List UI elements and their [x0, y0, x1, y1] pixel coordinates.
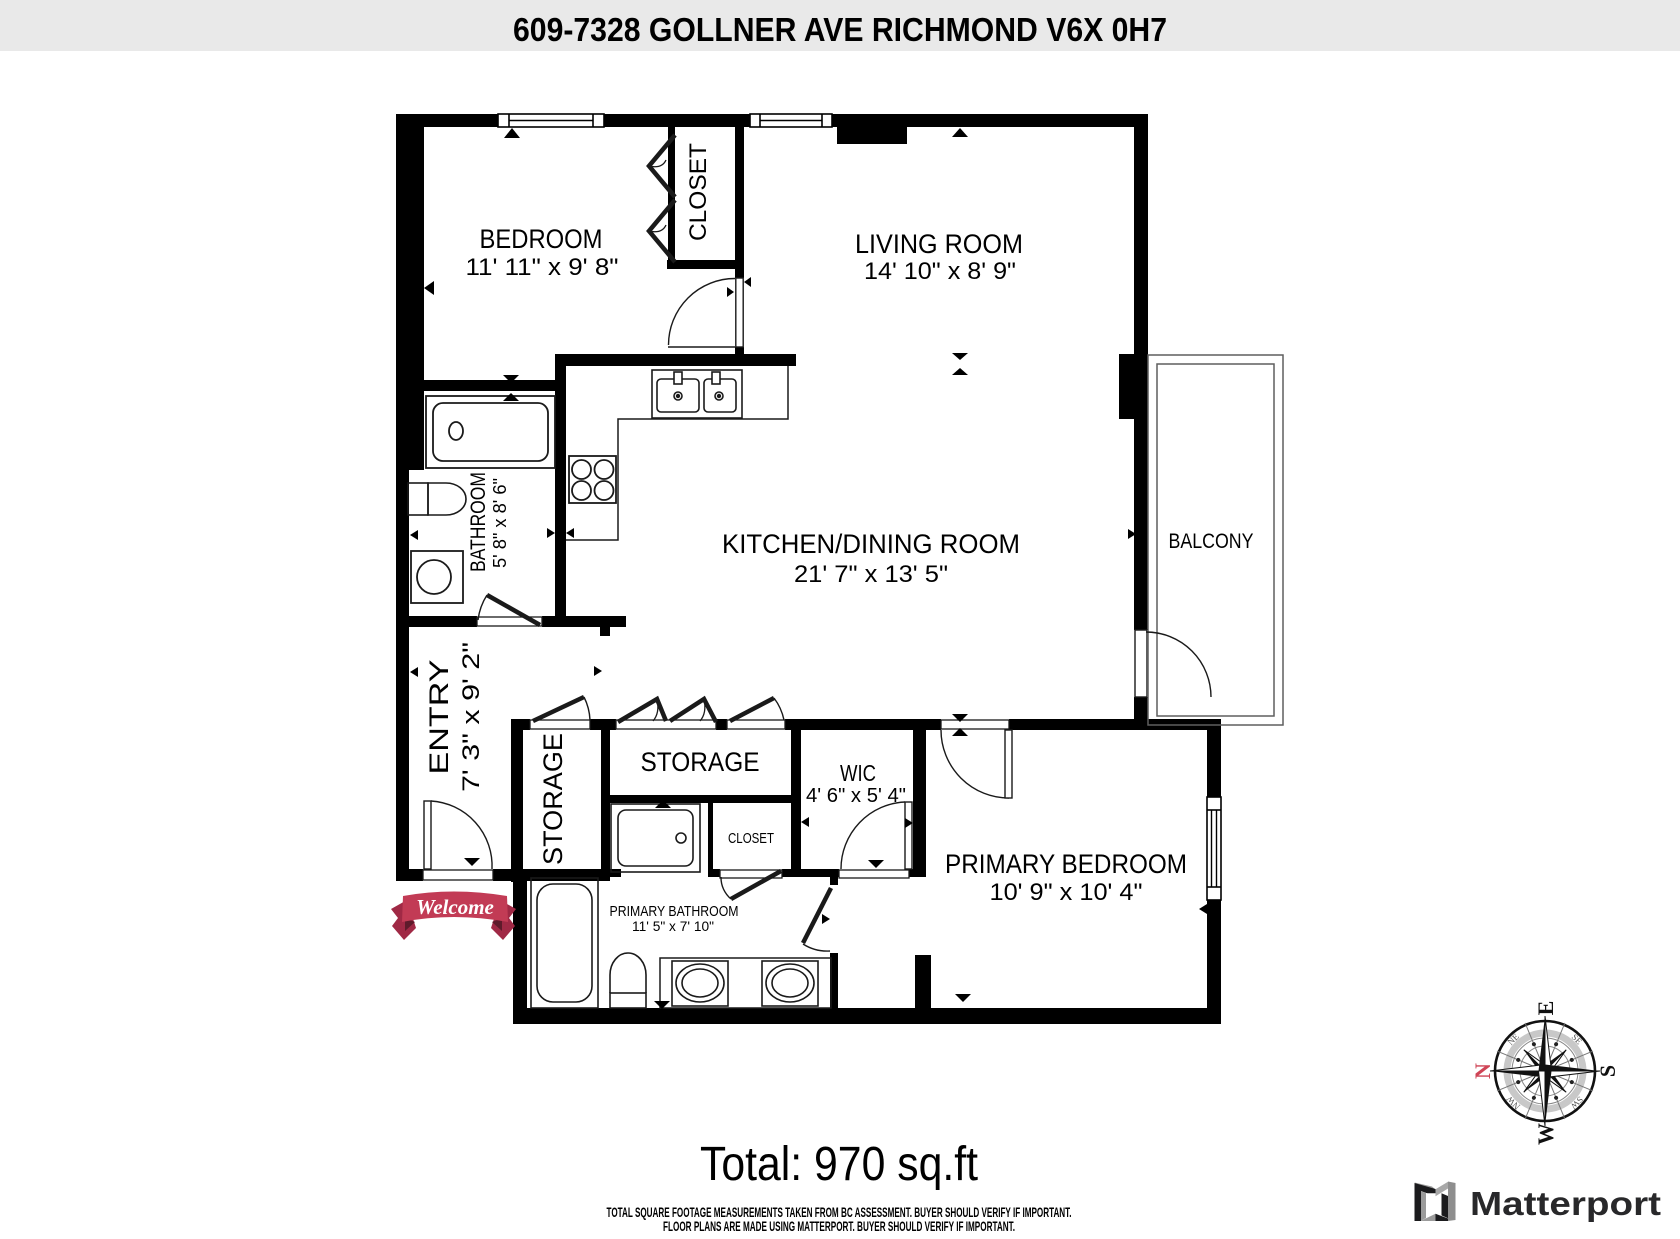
svg-text:CLOSET: CLOSET — [685, 143, 712, 241]
svg-text:11' 5" x 7' 10": 11' 5" x 7' 10" — [632, 918, 714, 934]
svg-text:PRIMARY BEDROOM: PRIMARY BEDROOM — [945, 849, 1187, 879]
svg-text:Welcome: Welcome — [416, 895, 494, 919]
svg-text:FLOOR PLANS ARE MADE USING MAT: FLOOR PLANS ARE MADE USING MATTERPORT. B… — [663, 1218, 1015, 1234]
svg-text:BEDROOM: BEDROOM — [480, 224, 603, 254]
svg-text:W: W — [1533, 1123, 1558, 1145]
svg-text:N: N — [1470, 1063, 1495, 1079]
svg-text:609-7328 GOLLNER AVE RICHMOND: 609-7328 GOLLNER AVE RICHMOND V6X 0H7 — [513, 11, 1167, 48]
svg-text:Matterport: Matterport — [1470, 1185, 1661, 1222]
svg-text:11' 11" x 9' 8": 11' 11" x 9' 8" — [466, 254, 619, 281]
svg-text:ENTRY: ENTRY — [424, 660, 454, 775]
svg-text:KITCHEN/DINING ROOM: KITCHEN/DINING ROOM — [722, 529, 1020, 559]
svg-text:21' 7" x 13' 5": 21' 7" x 13' 5" — [794, 561, 948, 588]
svg-text:STORAGE: STORAGE — [641, 747, 760, 777]
svg-text:10' 9" x 10' 4": 10' 9" x 10' 4" — [990, 879, 1143, 906]
svg-text:CLOSET: CLOSET — [728, 830, 774, 847]
svg-text:LIVING ROOM: LIVING ROOM — [855, 229, 1023, 259]
svg-text:14' 10" x 8' 9": 14' 10" x 8' 9" — [864, 258, 1016, 285]
svg-text:7' 3" x 9' 2": 7' 3" x 9' 2" — [458, 642, 485, 792]
svg-text:E: E — [1533, 1001, 1558, 1016]
svg-text:BATHROOM: BATHROOM — [467, 472, 490, 572]
svg-text:S: S — [1595, 1065, 1620, 1077]
svg-text:5' 8" x 8' 6": 5' 8" x 8' 6" — [490, 478, 510, 568]
svg-text:STORAGE: STORAGE — [538, 733, 568, 865]
svg-text:Total: 970 sq.ft: Total: 970 sq.ft — [700, 1138, 978, 1191]
svg-text:WIC: WIC — [840, 760, 876, 786]
svg-text:4' 6" x 5' 4": 4' 6" x 5' 4" — [806, 785, 906, 807]
svg-text:BALCONY: BALCONY — [1169, 530, 1254, 553]
